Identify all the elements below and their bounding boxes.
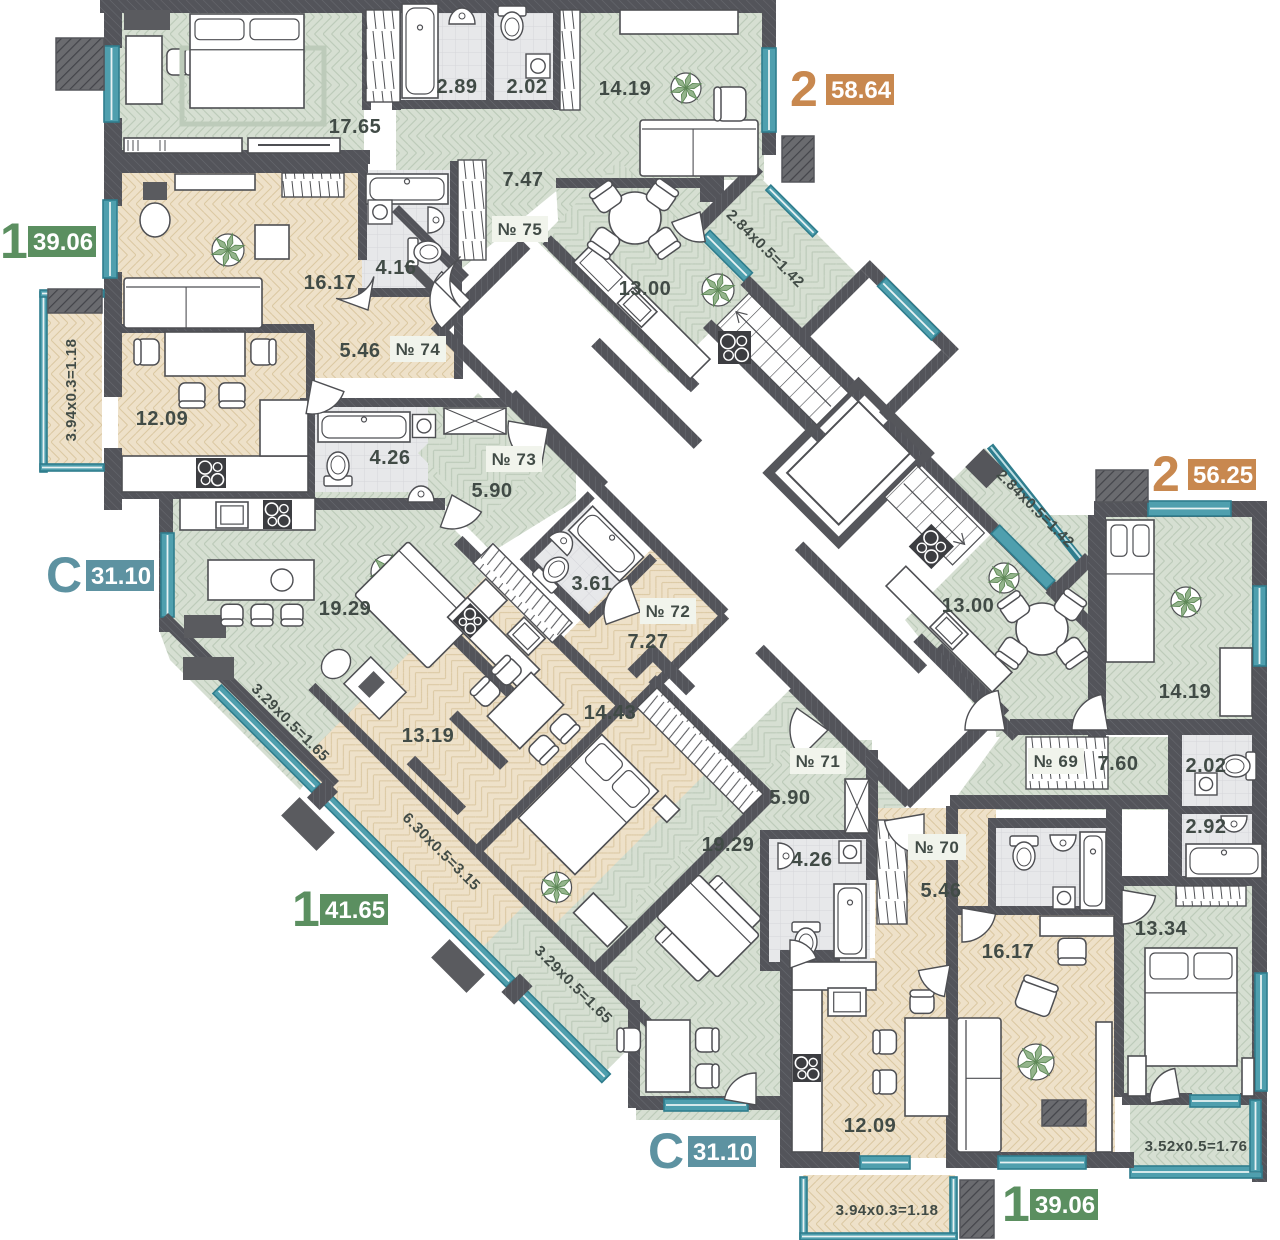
svg-text:14.43: 14.43 — [584, 702, 637, 724]
svg-text:16.17: 16.17 — [304, 272, 357, 294]
svg-text:19.29: 19.29 — [702, 834, 755, 856]
svg-text:13.00: 13.00 — [619, 278, 672, 300]
svg-text:С: С — [648, 1123, 684, 1179]
svg-text:№ 75: № 75 — [498, 220, 543, 239]
svg-text:№ 69: № 69 — [1034, 752, 1079, 771]
svg-text:7.60: 7.60 — [1098, 753, 1139, 775]
svg-text:2.89: 2.89 — [437, 76, 478, 98]
svg-text:2.02: 2.02 — [507, 76, 548, 98]
svg-text:№ 74: № 74 — [396, 340, 441, 359]
svg-text:3.94х0.3=1.18: 3.94х0.3=1.18 — [63, 339, 80, 442]
svg-text:3.52х0.5=1.76: 3.52х0.5=1.76 — [1145, 1138, 1248, 1155]
svg-text:39.06: 39.06 — [33, 229, 93, 256]
svg-text:2.02: 2.02 — [1186, 755, 1227, 777]
svg-text:5.90: 5.90 — [770, 787, 811, 809]
svg-text:19.29: 19.29 — [319, 598, 372, 620]
svg-text:2.92: 2.92 — [1186, 816, 1227, 838]
svg-text:№ 71: № 71 — [796, 752, 841, 771]
svg-text:12.09: 12.09 — [844, 1115, 897, 1137]
svg-text:5.46: 5.46 — [921, 880, 962, 902]
svg-text:39.06: 39.06 — [1035, 1192, 1095, 1219]
svg-text:5.46: 5.46 — [340, 340, 381, 362]
svg-text:14.19: 14.19 — [599, 78, 652, 100]
svg-text:№ 73: № 73 — [492, 450, 537, 469]
svg-text:7.27: 7.27 — [628, 631, 669, 653]
svg-text:17.65: 17.65 — [329, 116, 382, 138]
svg-text:5.90: 5.90 — [472, 480, 513, 502]
svg-text:2: 2 — [790, 61, 818, 117]
svg-text:4.16: 4.16 — [376, 257, 417, 279]
svg-text:1: 1 — [292, 881, 320, 937]
svg-text:16.17: 16.17 — [982, 941, 1035, 963]
svg-text:31.10: 31.10 — [91, 563, 151, 590]
svg-text:13.34: 13.34 — [1135, 918, 1188, 940]
svg-text:56.25: 56.25 — [1193, 462, 1253, 489]
svg-text:4.26: 4.26 — [370, 447, 411, 469]
svg-text:13.19: 13.19 — [402, 725, 455, 747]
svg-text:1: 1 — [0, 213, 28, 269]
svg-text:4.26: 4.26 — [792, 849, 833, 871]
svg-text:1: 1 — [1002, 1176, 1030, 1232]
svg-text:7.47: 7.47 — [503, 169, 544, 191]
svg-text:№ 70: № 70 — [915, 838, 960, 857]
svg-text:2: 2 — [1152, 446, 1180, 502]
svg-text:12.09: 12.09 — [136, 408, 189, 430]
svg-text:31.10: 31.10 — [693, 1139, 753, 1166]
svg-text:41.65: 41.65 — [325, 897, 385, 924]
svg-text:С: С — [46, 547, 82, 603]
svg-text:58.64: 58.64 — [831, 77, 892, 104]
svg-text:13.00: 13.00 — [942, 595, 995, 617]
svg-text:3.61: 3.61 — [572, 573, 613, 595]
svg-text:3.94х0.3=1.18: 3.94х0.3=1.18 — [836, 1202, 939, 1219]
svg-text:№ 72: № 72 — [646, 602, 691, 621]
svg-text:14.19: 14.19 — [1159, 681, 1212, 703]
